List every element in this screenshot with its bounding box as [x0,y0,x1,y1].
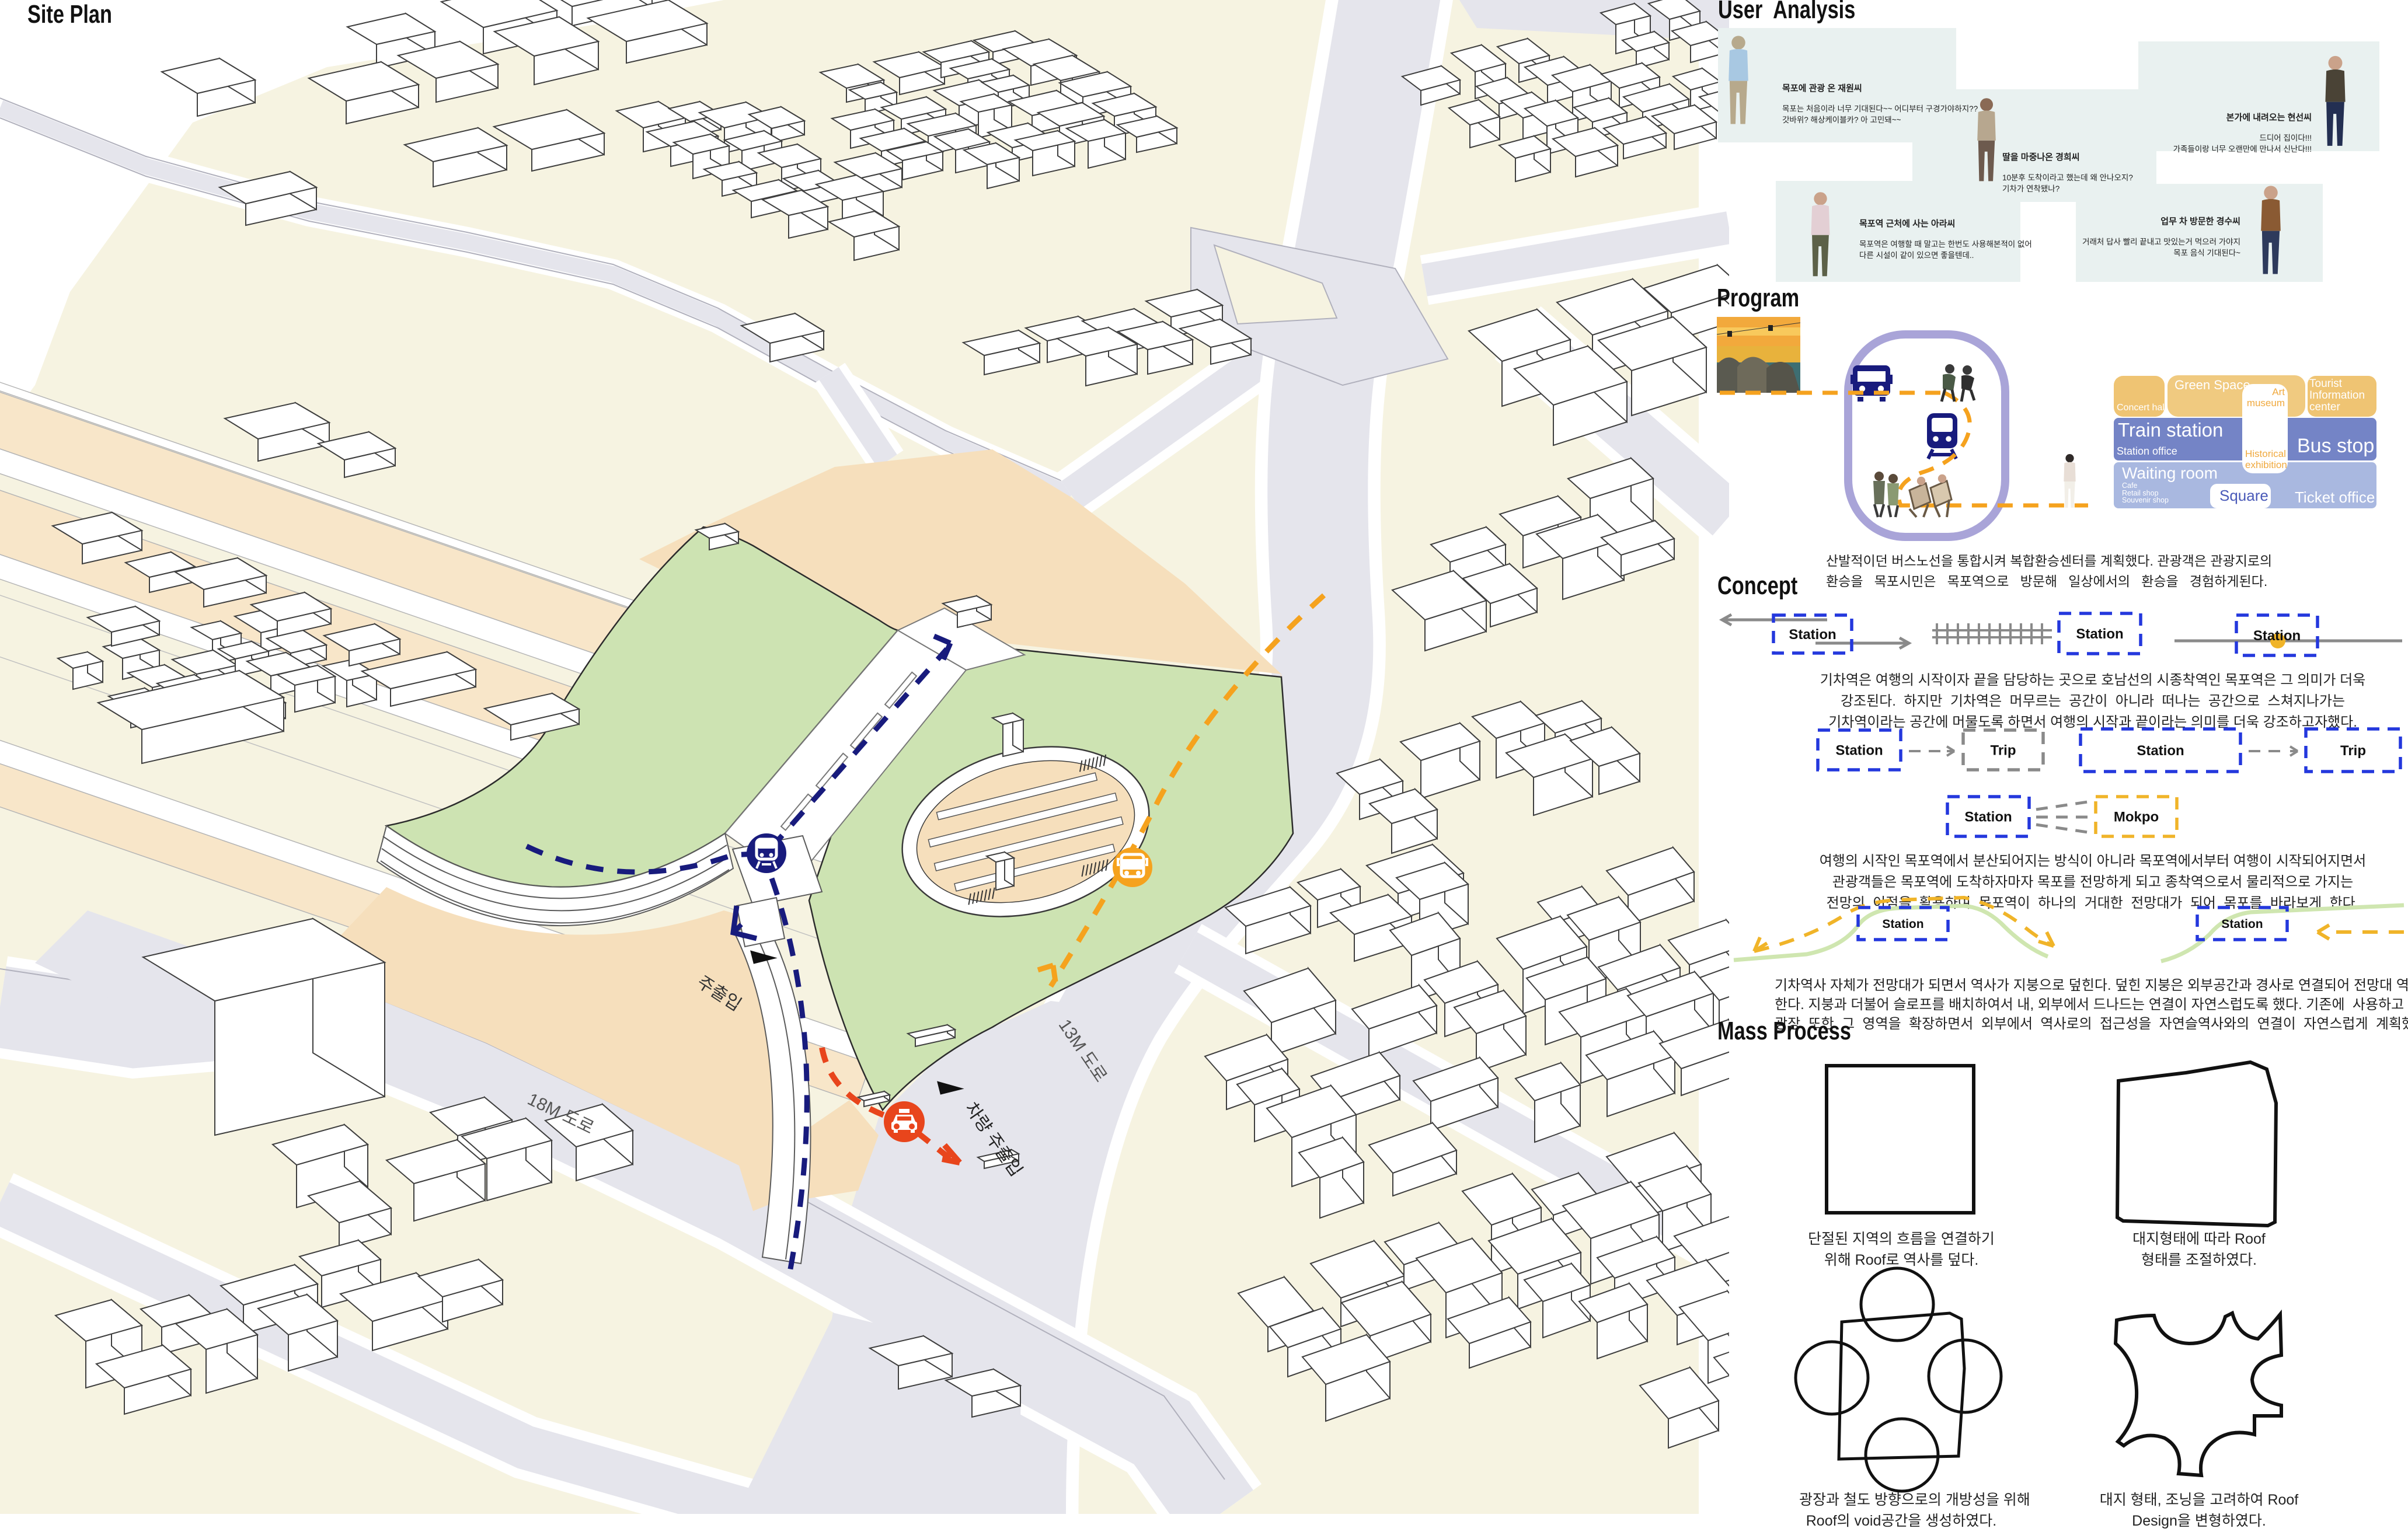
svg-text:Station: Station [1964,809,2012,825]
svg-text:Station: Station [2137,743,2184,759]
svg-text:Station: Station [2253,628,2301,644]
svg-text:Mokpo: Mokpo [2114,809,2159,825]
svg-text:Station: Station [2076,626,2123,642]
svg-text:Station: Station [1882,917,1923,931]
svg-text:Station: Station [1789,627,1836,643]
svg-text:Station: Station [1835,743,1883,759]
svg-text:Station: Station [2221,917,2263,931]
svg-text:Trip: Trip [1990,743,2016,759]
svg-text:Trip: Trip [2340,743,2366,759]
